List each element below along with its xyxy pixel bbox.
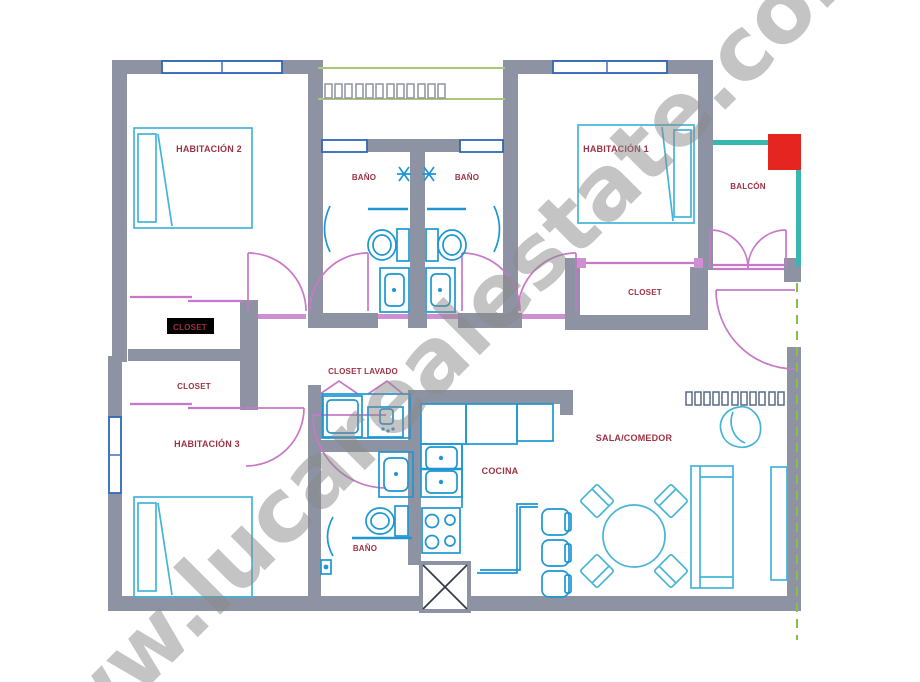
bed-habitacion2 xyxy=(134,128,252,228)
shower-head-icon xyxy=(321,560,331,574)
wall-hatch-row xyxy=(686,392,784,405)
patio-hatch-squares xyxy=(325,84,445,98)
window-habitacion2 xyxy=(162,61,282,73)
label-habitacion2: HABITACIÓN 2 xyxy=(176,143,242,154)
dining-table xyxy=(580,484,688,588)
shaft-x-box xyxy=(421,563,469,611)
label-closet-hab3: CLOSET xyxy=(177,382,211,391)
kitchen-sink-icon xyxy=(421,444,462,497)
toilet-icon xyxy=(366,506,408,536)
label-cocina: COCINA xyxy=(482,466,519,476)
sink-icon-left xyxy=(380,268,409,312)
label-habitacion3: HABITACIÓN 3 xyxy=(174,438,240,449)
bar-stools xyxy=(542,509,571,597)
label-closet-selected: CLOSET xyxy=(167,318,214,334)
closet2-sliding-doors xyxy=(130,404,243,408)
breakfast-bar xyxy=(477,504,538,573)
label-bano-right: BAÑO xyxy=(455,173,479,182)
label-sala-comedor: SALA/COMEDOR xyxy=(596,433,673,443)
door-entrance xyxy=(716,290,795,369)
sofa-long xyxy=(691,466,733,588)
balcony xyxy=(713,134,801,266)
shower-door-left xyxy=(325,206,331,252)
svg-text:CLOSET: CLOSET xyxy=(173,323,207,332)
floor-plan-svg: HABITACIÓN 2 BAÑO BAÑO HABITACIÓN 1 BALC… xyxy=(0,0,920,682)
floor-plan-page: HABITACIÓN 2 BAÑO BAÑO HABITACIÓN 1 BALC… xyxy=(0,0,920,682)
living-dining xyxy=(580,392,787,588)
closet1-sliding-doors xyxy=(130,297,243,301)
toilet-icon-right xyxy=(426,229,466,261)
plant-icon xyxy=(721,407,761,448)
balcony-column xyxy=(768,134,801,170)
label-bano-hab3: BAÑO xyxy=(353,544,377,553)
window-habitacion3 xyxy=(109,417,121,493)
label-balcon: BALCÓN xyxy=(730,182,765,191)
balcony-edge-right xyxy=(796,170,801,266)
toilet-icon-left xyxy=(368,229,409,261)
sofa-side xyxy=(771,467,787,580)
label-closet-hab1: CLOSET xyxy=(628,288,662,297)
door-balcony-french xyxy=(710,230,786,269)
label-bano-left: BAÑO xyxy=(352,173,376,182)
stove-icon xyxy=(422,508,460,553)
valve-icon xyxy=(397,167,411,181)
window-bath-left xyxy=(322,140,367,152)
counter-top-3 xyxy=(517,404,553,441)
window-bath-right xyxy=(460,140,503,152)
counter-top-2 xyxy=(466,404,517,444)
